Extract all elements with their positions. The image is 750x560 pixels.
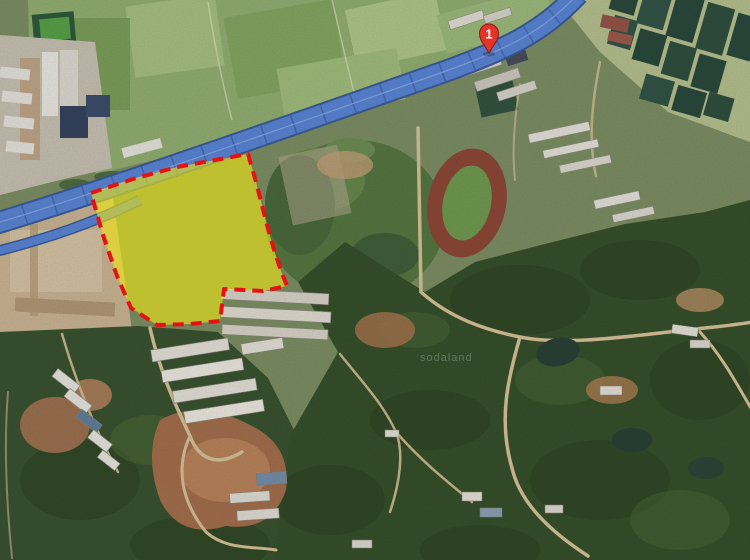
- map-canvas: sodaland 1: [0, 0, 750, 560]
- marker-label: 1: [485, 27, 492, 42]
- watermark: sodaland: [420, 352, 473, 364]
- grain-texture: [0, 0, 750, 560]
- satellite-map-view[interactable]: sodaland 1: [0, 0, 750, 560]
